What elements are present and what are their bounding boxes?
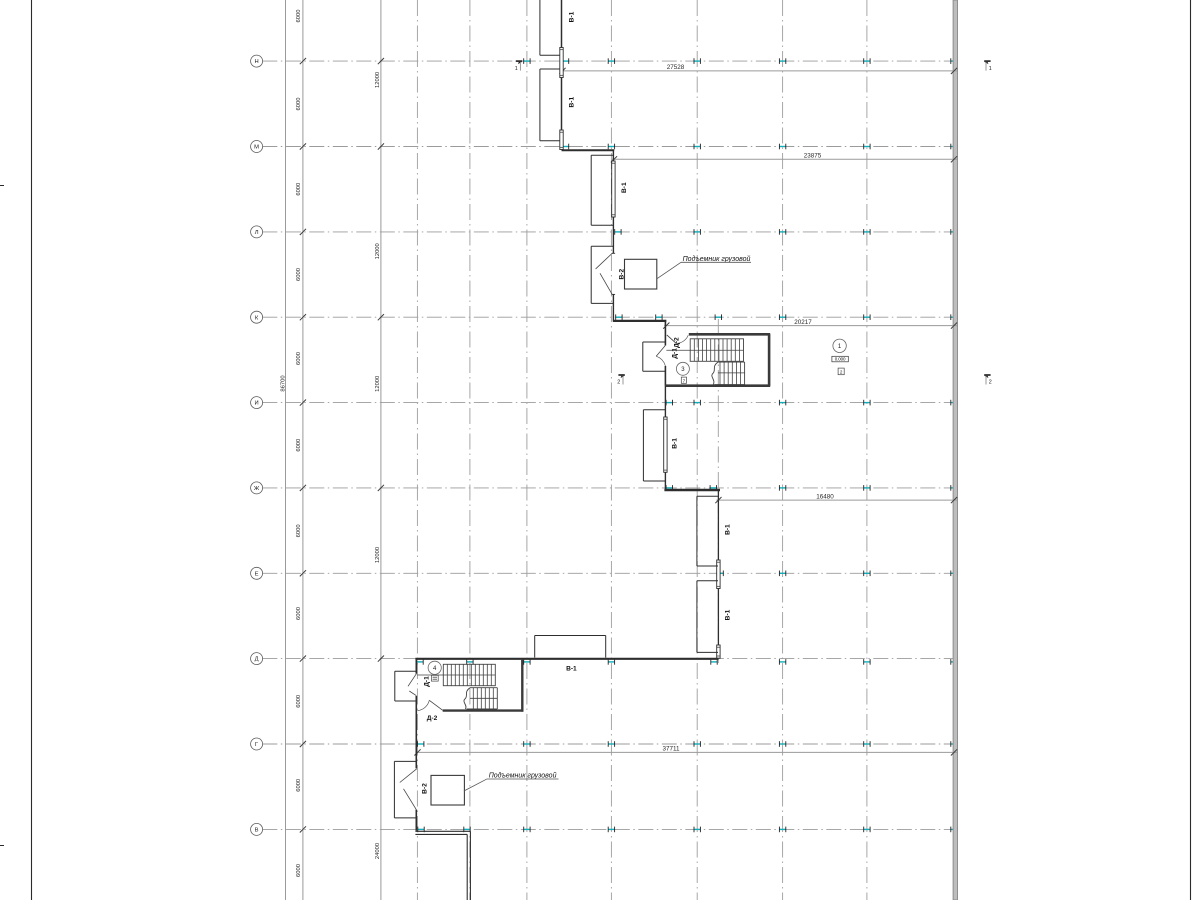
svg-text:В: В (255, 828, 259, 834)
svg-text:86700: 86700 (281, 375, 287, 391)
svg-text:Л: Л (255, 230, 259, 236)
svg-text:0.000: 0.000 (835, 357, 846, 362)
svg-text:В-1: В-1 (724, 524, 731, 535)
svg-text:И: И (255, 401, 259, 407)
svg-text:1: 1 (515, 66, 518, 72)
svg-text:2: 2 (840, 370, 843, 375)
svg-text:7: 7 (683, 378, 686, 383)
svg-text:Подъемник грузовой: Подъемник грузовой (683, 255, 751, 263)
svg-text:2: 2 (617, 380, 620, 386)
svg-text:В-2: В-2 (422, 783, 429, 794)
svg-text:В-1: В-1 (568, 97, 575, 108)
svg-text:В-1: В-1 (724, 609, 731, 620)
svg-text:6000: 6000 (296, 695, 302, 708)
svg-text:6000: 6000 (296, 98, 302, 111)
svg-text:12000: 12000 (375, 547, 381, 563)
svg-text:6000: 6000 (296, 607, 302, 620)
svg-text:12000: 12000 (375, 243, 381, 259)
svg-text:6000: 6000 (296, 779, 302, 792)
svg-text:16480: 16480 (816, 493, 834, 500)
svg-text:Д-1: Д-1 (671, 348, 678, 359)
svg-text:6000: 6000 (296, 268, 302, 281)
svg-text:12000: 12000 (375, 72, 381, 88)
svg-text:2: 2 (989, 380, 992, 386)
svg-text:Д: Д (255, 657, 259, 663)
svg-text:В-1: В-1 (672, 438, 679, 449)
svg-text:6000: 6000 (296, 439, 302, 452)
svg-text:В-1: В-1 (568, 11, 575, 22)
svg-text:В-1: В-1 (566, 665, 577, 672)
svg-text:М: М (254, 145, 259, 151)
svg-text:6000: 6000 (296, 183, 302, 196)
svg-text:24000: 24000 (375, 843, 381, 859)
svg-text:Д-2: Д-2 (674, 337, 681, 348)
svg-text:6000: 6000 (296, 352, 302, 365)
svg-text:Н: Н (255, 59, 259, 65)
svg-text:23875: 23875 (804, 153, 822, 160)
svg-text:12000: 12000 (375, 376, 381, 392)
svg-text:Ж: Ж (254, 486, 260, 492)
svg-text:В-2: В-2 (619, 269, 626, 280)
svg-text:6000: 6000 (296, 524, 302, 537)
svg-text:6000: 6000 (296, 864, 302, 877)
svg-text:37711: 37711 (662, 746, 680, 753)
svg-text:1: 1 (989, 66, 992, 72)
svg-text:Подъемник грузовой: Подъемник грузовой (489, 771, 557, 779)
svg-text:В-1: В-1 (621, 182, 628, 193)
svg-text:Е: Е (255, 571, 259, 577)
svg-text:6000: 6000 (296, 10, 302, 23)
svg-text:27528: 27528 (667, 64, 685, 71)
svg-text:Д-2: Д-2 (427, 715, 438, 722)
svg-text:Д-1: Д-1 (424, 676, 431, 687)
svg-text:20217: 20217 (794, 319, 812, 326)
